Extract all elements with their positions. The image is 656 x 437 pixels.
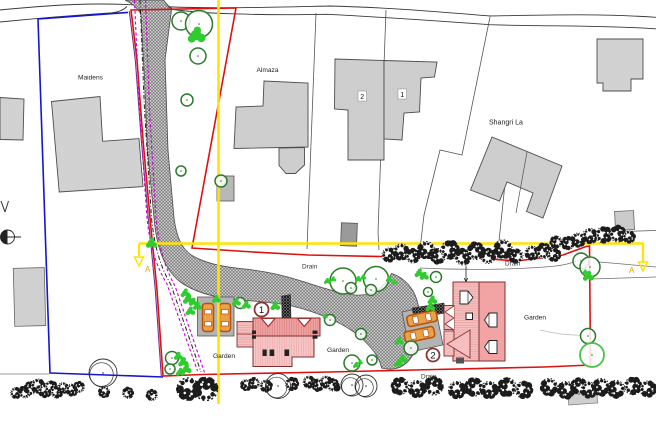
svg-text:Garden: Garden [213, 353, 235, 360]
svg-text:Drain: Drain [421, 374, 437, 381]
svg-text:2: 2 [430, 350, 435, 361]
svg-text:Garden: Garden [524, 315, 546, 322]
svg-text:2: 2 [360, 94, 364, 101]
svg-text:Drain: Drain [302, 264, 318, 271]
svg-text:1: 1 [259, 305, 264, 316]
svg-text:Maidens: Maidens [78, 75, 104, 82]
svg-text:Garden: Garden [327, 347, 349, 354]
svg-text:Almaza: Almaza [257, 67, 279, 74]
svg-text:A: A [145, 265, 151, 274]
svg-text:Drain: Drain [505, 261, 521, 268]
svg-text:Shangri La: Shangri La [489, 120, 523, 127]
svg-text:1: 1 [400, 92, 404, 99]
svg-text:A: A [629, 266, 635, 275]
